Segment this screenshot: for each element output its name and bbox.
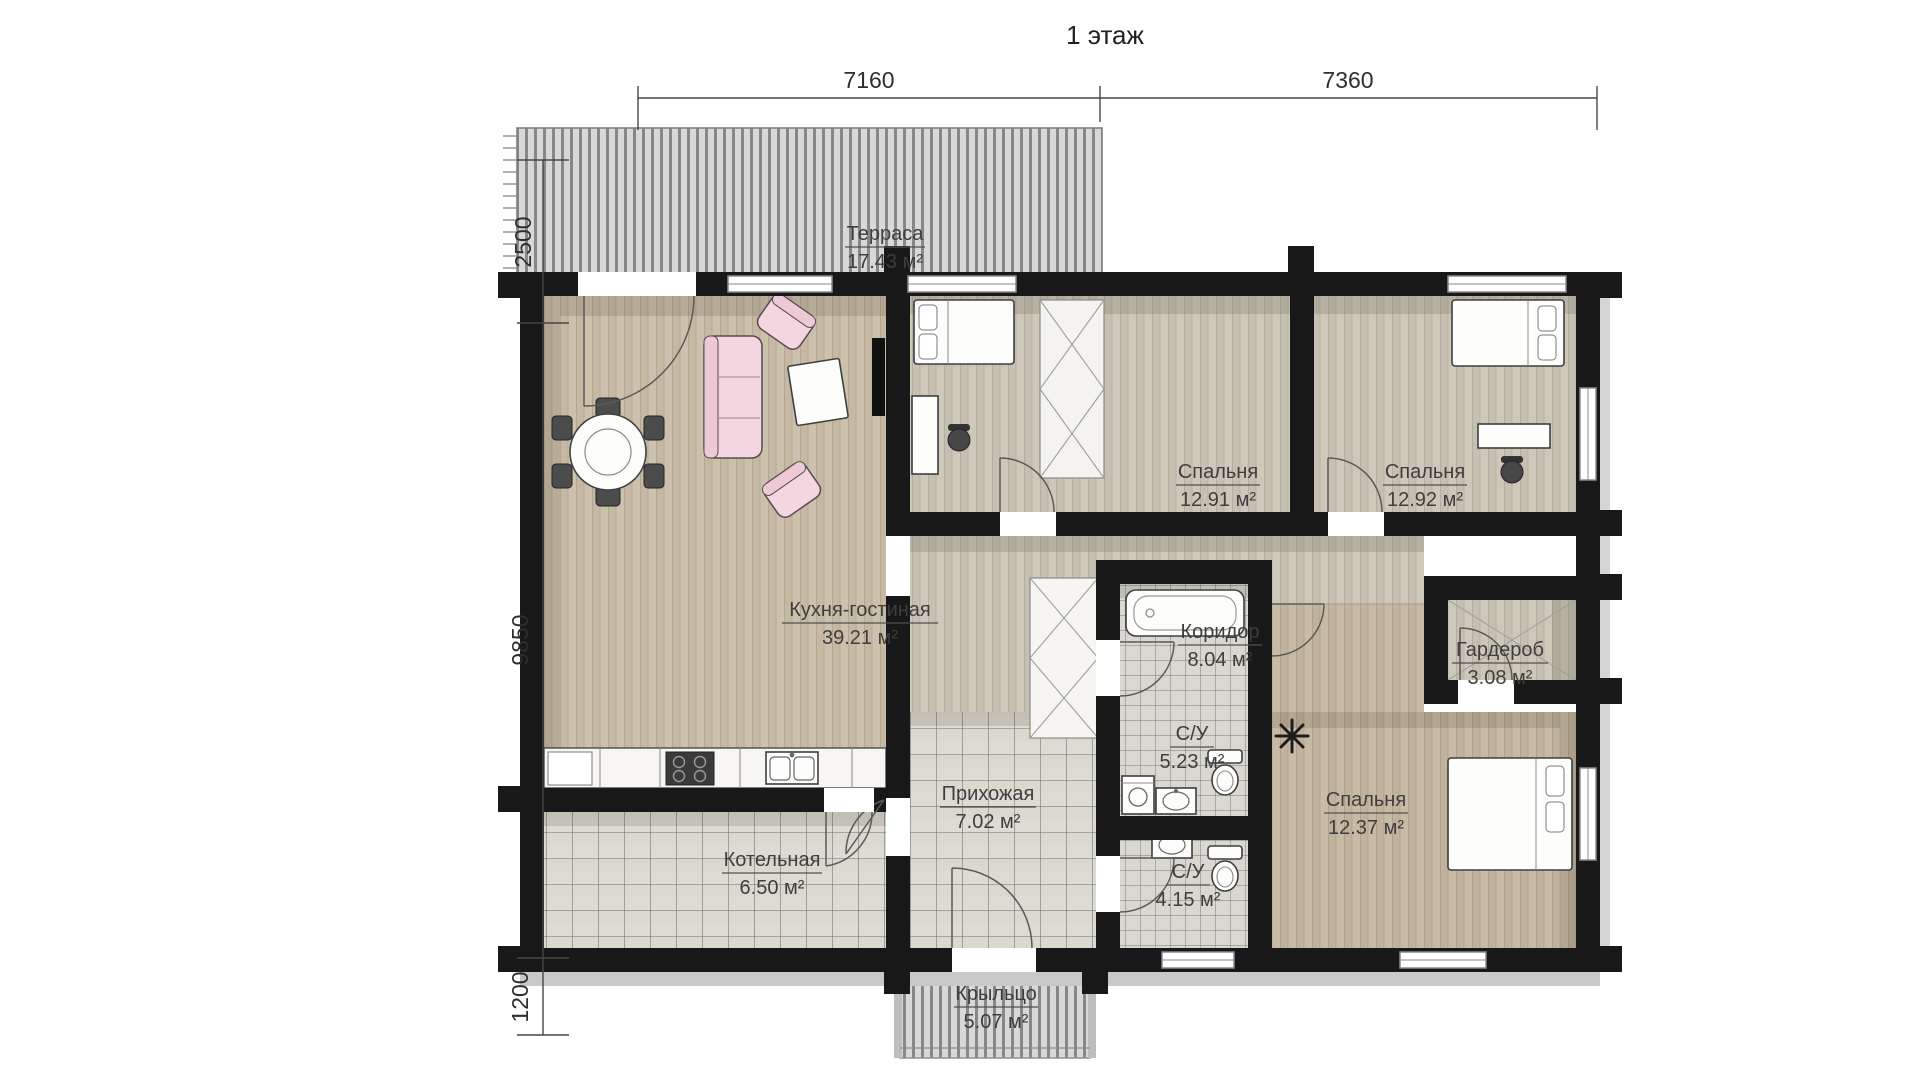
window-icon: [1400, 952, 1486, 968]
dimension-label-7360: 7360: [1322, 67, 1373, 93]
floor-plan: Терраса 17.43 м² Кухня-гостиная 39.21 м²…: [0, 0, 1920, 1080]
dining-chair-icon: [552, 416, 572, 440]
bed-icon: [1452, 300, 1564, 366]
terrace-deck: [503, 128, 1102, 274]
window-icon: [1580, 768, 1596, 860]
room-area: 5.07 м²: [964, 1011, 1029, 1033]
window-icon: [908, 276, 1016, 292]
room-name: Спальня: [1178, 461, 1258, 483]
sofa-icon: [704, 336, 762, 458]
kitchen-counter: [544, 748, 886, 788]
office-chair-icon: [1501, 456, 1523, 483]
fridge-icon: [548, 752, 592, 785]
room-name: Кухня-гостиная: [789, 599, 931, 621]
room-name: Коридор: [1181, 621, 1260, 643]
dimension-label-9850: 9850: [507, 614, 533, 665]
room-area: 5.23 м²: [1160, 751, 1225, 773]
room-area: 4.15 м²: [1156, 889, 1221, 911]
boiler-room-floor: [544, 812, 886, 948]
tv-icon: [872, 338, 885, 416]
room-area: 6.50 м²: [740, 877, 805, 899]
plant-icon: [1276, 720, 1308, 752]
room-name: Крыльцо: [955, 983, 1037, 1005]
page-title: 1 этаж: [1066, 20, 1144, 50]
dining-chair-icon: [644, 464, 664, 488]
desk-icon: [1478, 424, 1550, 448]
dining-table-icon: [570, 414, 646, 490]
room-name: Котельная: [724, 849, 821, 871]
sink-icon: [1156, 788, 1196, 814]
closet-icon: [1040, 300, 1104, 478]
dimension-label-7160: 7160: [843, 67, 894, 93]
bottom-roof-shadow: [520, 972, 1600, 986]
room-area: 3.08 м²: [1468, 667, 1533, 689]
room-name: Гардероб: [1456, 639, 1544, 661]
dimension-label-2500: 2500: [510, 216, 536, 267]
window-icon: [1162, 952, 1234, 968]
hall-closet-icon: [1030, 578, 1098, 738]
window-icon: [1580, 388, 1596, 480]
room-area: 7.02 м²: [956, 811, 1021, 833]
dimension-label-1200: 1200: [507, 971, 533, 1022]
dining-chair-icon: [552, 464, 572, 488]
room-name: Спальня: [1385, 461, 1465, 483]
window-icon: [1448, 276, 1566, 292]
bedroom-3-floor-arm: [1272, 604, 1424, 712]
room-area: 39.21 м²: [822, 627, 898, 649]
room-name: С/У: [1172, 861, 1205, 883]
room-area: 17.43 м²: [847, 251, 923, 273]
coffee-table-icon: [788, 358, 849, 425]
right-roof-shadow: [1600, 296, 1610, 972]
room-name: С/У: [1176, 723, 1209, 745]
room-area: 12.92 м²: [1387, 489, 1463, 511]
room-name: Прихожая: [942, 783, 1035, 805]
room-name: Спальня: [1326, 789, 1406, 811]
window-icon: [728, 276, 832, 292]
office-chair-icon: [948, 424, 970, 451]
room-area: 8.04 м²: [1188, 649, 1253, 671]
bed-icon: [914, 300, 1014, 364]
room-name: Терраса: [847, 223, 925, 245]
room-area: 12.91 м²: [1180, 489, 1256, 511]
room-area: 12.37 м²: [1328, 817, 1404, 839]
kitchen-sink-icon: [766, 752, 818, 784]
dining-chair-icon: [644, 416, 664, 440]
desk-icon: [912, 396, 938, 474]
bed-icon: [1448, 758, 1572, 870]
washing-machine-icon: [1122, 776, 1154, 814]
stove-icon: [666, 752, 714, 785]
